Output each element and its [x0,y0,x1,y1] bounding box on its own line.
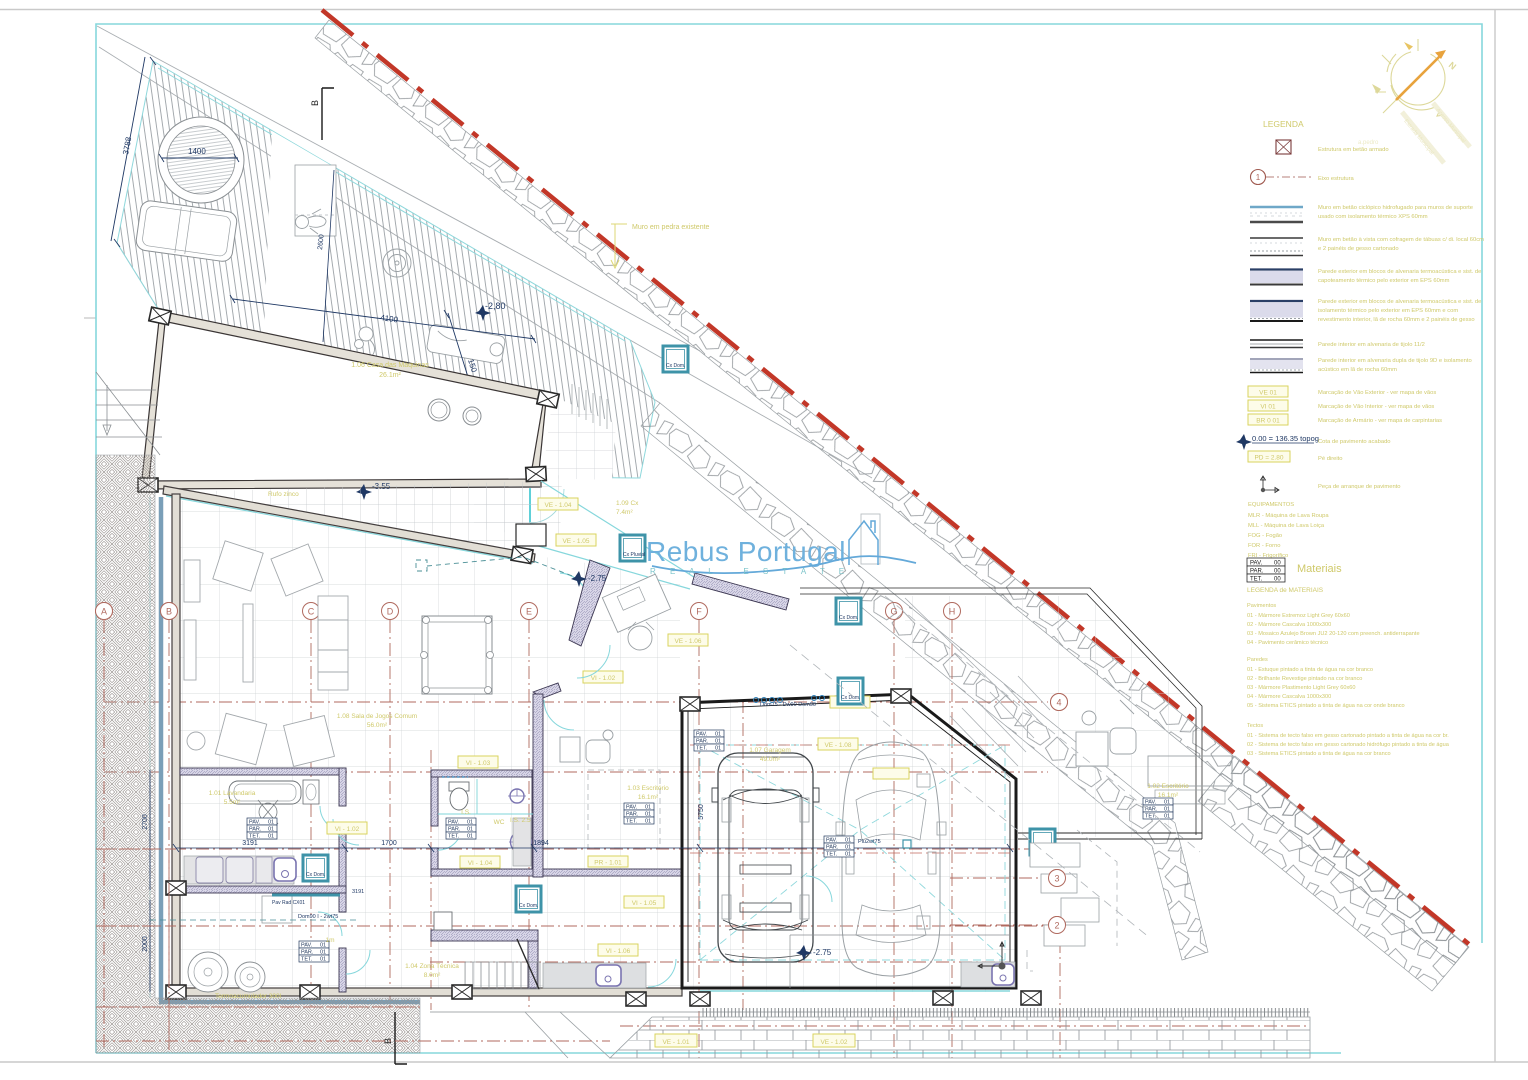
svg-text:A: A [101,607,107,617]
svg-text:VE - 1.08: VE - 1.08 [824,742,851,749]
svg-text:Paredes: Paredes [1247,657,1268,663]
svg-text:1.06 Casa das Máquinas: 1.06 Casa das Máquinas [351,362,429,369]
svg-text:Dom90 I - 2wt75: Dom90 I - 2wt75 [298,914,338,920]
svg-text:VE - 1.04: VE - 1.04 [544,502,571,509]
svg-text:16.1m²: 16.1m² [1158,792,1179,799]
svg-text:1.08 Sala de Jogos Comum: 1.08 Sala de Jogos Comum [337,713,417,720]
svg-text:MLR - Máquina de Lava Roupa: MLR - Máquina de Lava Roupa [1248,513,1329,519]
svg-text:WC: WC [494,819,505,826]
svg-text:VE - 1.06: VE - 1.06 [674,638,701,645]
svg-text:VI - 1.06: VI - 1.06 [606,948,631,955]
svg-text:3191: 3191 [352,889,364,895]
svg-text:Cx Dom.: Cx Dom. [841,695,860,701]
svg-text:1.09 Cx: 1.09 Cx [616,500,639,507]
svg-text:16.1m²: 16.1m² [638,794,659,801]
svg-text:revestimento interior, lã de r: revestimento interior, lã de rocha 60mm … [1318,317,1475,323]
svg-text:VI - 1.03: VI - 1.03 [466,760,491,767]
svg-text:-2.75: -2.75 [588,574,607,583]
svg-text:00: 00 [1274,569,1281,575]
svg-text:Cota de pavimento acabado: Cota de pavimento acabado [1318,439,1391,445]
svg-text:LEGENDA: LEGENDA [1263,119,1304,129]
svg-text:VE 01: VE 01 [1259,390,1277,397]
svg-text:02 - Brilhante Revestige pinta: 02 - Brilhante Revestige pintado na cor … [1247,676,1362,682]
svg-text:49.0m²: 49.0m² [760,756,781,763]
svg-text:C: C [308,607,315,617]
svg-text:02 - Mármore Cascalva 1000x300: 02 - Mármore Cascalva 1000x300 [1247,622,1331,628]
svg-text:Cx Pluvial: Cx Pluvial [623,552,645,558]
svg-text:01 - Mármore Estremoz Light Gr: 01 - Mármore Estremoz Light Grey 60x60 [1247,613,1350,619]
svg-text:VE - 1.02: VE - 1.02 [820,1039,847,1046]
svg-text:acústico em lã de rocha 60mm: acústico em lã de rocha 60mm [1318,367,1397,373]
svg-text:Parede exterior em blocos de a: Parede exterior em blocos de alvenaria t… [1318,299,1481,305]
svg-text:03 - Mosaico Azulejo Brown JU2: 03 - Mosaico Azulejo Brown JU2 20-120 co… [1247,631,1420,637]
svg-text:B: B [310,100,320,106]
svg-text:05 - Sistema ETICS pintado a t: 05 - Sistema ETICS pintado a tinta de ág… [1247,703,1405,709]
svg-text:02 - Sistema de tecto falso em: 02 - Sistema de tecto falso em gesso car… [1247,742,1450,748]
svg-text:Marcação de Vão Exterior - ver: Marcação de Vão Exterior - ver mapa de v… [1318,390,1436,396]
svg-text:2700: 2700 [142,814,149,830]
svg-text:1.02 Escritório: 1.02 Escritório [1147,783,1189,790]
svg-text:Muro em betão à vista com cofr: Muro em betão à vista com cofragem de tá… [1318,237,1484,243]
svg-text:Marcação de Vão Interior - ver: Marcação de Vão Interior - ver mapa de v… [1318,404,1434,410]
svg-text:1.07 Garagem: 1.07 Garagem [749,747,791,754]
svg-text:Plu2wt75: Plu2wt75 [858,839,881,845]
svg-text:5.5m²: 5.5m² [224,799,241,806]
svg-text:1m: 1m [325,937,334,944]
svg-text:Parede interior em alvenaria d: Parede interior em alvenaria de tijolo 1… [1318,342,1425,348]
svg-text:1894: 1894 [533,840,549,847]
svg-text:01 - Sistema de tecto falso em: 01 - Sistema de tecto falso em gesso car… [1247,733,1449,739]
svg-text:Estrutura em betão armado: Estrutura em betão armado [1318,147,1389,153]
svg-text:1: 1 [1256,173,1261,182]
svg-text:E: E [526,607,532,617]
svg-text:1400: 1400 [188,147,206,156]
svg-text:Parede interior em alvenaria d: Parede interior em alvenaria dupla de ti… [1318,358,1472,364]
svg-text:D: D [387,607,394,617]
svg-text:Cx Dom.: Cx Dom. [666,363,685,369]
svg-text:FOG - Fogão: FOG - Fogão [1248,533,1282,539]
svg-text:TET.: TET. [1250,577,1263,583]
svg-text:00: 00 [1274,577,1281,583]
svg-text:04 - Mármore Cascalva 1000x300: 04 - Mármore Cascalva 1000x300 [1247,694,1331,700]
svg-text:PR - 1.01: PR - 1.01 [594,860,622,867]
svg-text:Muro em betão ciclópico hidrof: Muro em betão ciclópico hidrofugado para… [1318,205,1473,211]
svg-text:VE - 1.01: VE - 1.01 [662,1039,689,1046]
svg-text:VE - 1.05: VE - 1.05 [562,538,589,545]
svg-text:F: F [696,607,702,617]
svg-text:PAV.: PAV. [1250,561,1263,567]
svg-text:Pé direito: Pé direito [1318,456,1343,462]
svg-text:isolamento térmico pelo exteri: isolamento térmico pelo exterior em EPS … [1318,308,1458,314]
svg-text:0.00 = 136.35 topog: 0.00 = 136.35 topog [1252,434,1319,443]
svg-text:3: 3 [1054,874,1059,884]
svg-text:01 - Estuque pintado a tinta d: 01 - Estuque pintado a tinta de água na … [1247,667,1373,673]
svg-text:1.03 Escritório: 1.03 Escritório [627,785,669,792]
svg-text:7.4m²: 7.4m² [616,509,633,516]
svg-text:capoteamento térmico pelo exte: capoteamento térmico pelo exterior em EP… [1318,278,1450,284]
svg-text:Marcação de Armário - ver mapa: Marcação de Armário - ver mapa de carpin… [1318,418,1442,424]
svg-text:3191: 3191 [242,840,258,847]
svg-text:FOR - Forno: FOR - Forno [1248,543,1281,549]
svg-text:VI - 1.02: VI - 1.02 [335,826,360,833]
svg-text:Peça de arranque de pavimento: Peça de arranque de pavimento [1318,484,1401,490]
svg-text:Materiais: Materiais [1297,563,1342,575]
svg-text:VI - 1.05: VI - 1.05 [632,900,657,907]
svg-text:56.0m²: 56.0m² [367,722,388,729]
svg-text:VI - 1.04: VI - 1.04 [468,860,493,867]
svg-text:VI - 1.02: VI - 1.02 [591,675,616,682]
svg-text:BR 0 01: BR 0 01 [1256,418,1280,425]
svg-text:Rebus Portugal: Rebus Portugal [646,536,846,567]
svg-text:5750: 5750 [698,804,705,820]
svg-text:usado com isolamento térmico X: usado com isolamento térmico XPS 60mm [1318,214,1428,220]
svg-text:Cx Dom.: Cx Dom. [519,903,538,909]
svg-text:1.04 Zona Técnica: 1.04 Zona Técnica [405,963,459,970]
svg-text:LEGENDA de MATERIAIS: LEGENDA de MATERIAIS [1247,587,1324,594]
svg-text:Cx Dom.: Cx Dom. [306,872,325,878]
svg-text:H: H [949,607,956,617]
svg-text:Dom75 - Dw90 Dom90: Dom75 - Dw90 Dom90 [760,702,816,708]
svg-text:R E A L E S T A T E: R E A L E S T A T E [650,567,850,576]
svg-text:2: 2 [1054,921,1059,931]
svg-text:Eixo estrutura: Eixo estrutura [1318,176,1355,182]
svg-text:04 - Pavimento cerâmico técnic: 04 - Pavimento cerâmico técnico [1247,640,1328,646]
svg-text:B: B [166,607,172,617]
svg-text:Cx Dom.: Cx Dom. [839,615,858,621]
svg-text:I.S.: I.S. [461,809,471,816]
svg-text:1.01 Lavandaria: 1.01 Lavandaria [209,790,256,797]
svg-text:Parede exterior em blocos de a: Parede exterior em blocos de alvenaria t… [1318,269,1481,275]
svg-text:MLL - Máquina de Lava Loiça: MLL - Máquina de Lava Loiça [1248,523,1325,529]
svg-text:EQUIPAMENTOS: EQUIPAMENTOS [1248,502,1294,508]
svg-text:G: G [890,607,897,617]
svg-text:-2,80: -2,80 [485,301,506,311]
svg-text:4: 4 [1056,698,1061,708]
svg-text:8.0m²: 8.0m² [424,972,441,979]
svg-text:-2.75: -2.75 [813,948,832,957]
svg-text:Termoacumulador 300l: Termoacumulador 300l [215,993,282,1000]
svg-text:1700: 1700 [381,840,397,847]
svg-text:03 - Mármore Plastimento Light: 03 - Mármore Plastimento Light Grey 60x6… [1247,685,1356,691]
svg-text:VI 01: VI 01 [1260,404,1276,411]
svg-text:a.pedro: a.pedro [1358,140,1379,146]
svg-text:e 2 painéis de gesso cartonado: e 2 painéis de gesso cartonado [1318,246,1399,252]
svg-text:2000: 2000 [142,936,149,952]
svg-text:PAR.: PAR. [1250,569,1264,575]
svg-text:03 - Sistema ETICS pintado a t: 03 - Sistema ETICS pintado a tinta de ág… [1247,751,1391,757]
svg-text:PD = 2.80: PD = 2.80 [1254,455,1283,462]
svg-text:26.1m²: 26.1m² [379,372,401,379]
svg-text:Tectos: Tectos [1247,723,1263,729]
svg-text:I.S. 2.5: I.S. 2.5 [510,817,531,824]
svg-text:Pavimentos: Pavimentos [1247,603,1276,609]
svg-text:Pav Rad CX01: Pav Rad CX01 [272,900,305,906]
svg-text:Muro em pedra existente: Muro em pedra existente [632,224,710,231]
svg-text:00: 00 [1274,561,1281,567]
